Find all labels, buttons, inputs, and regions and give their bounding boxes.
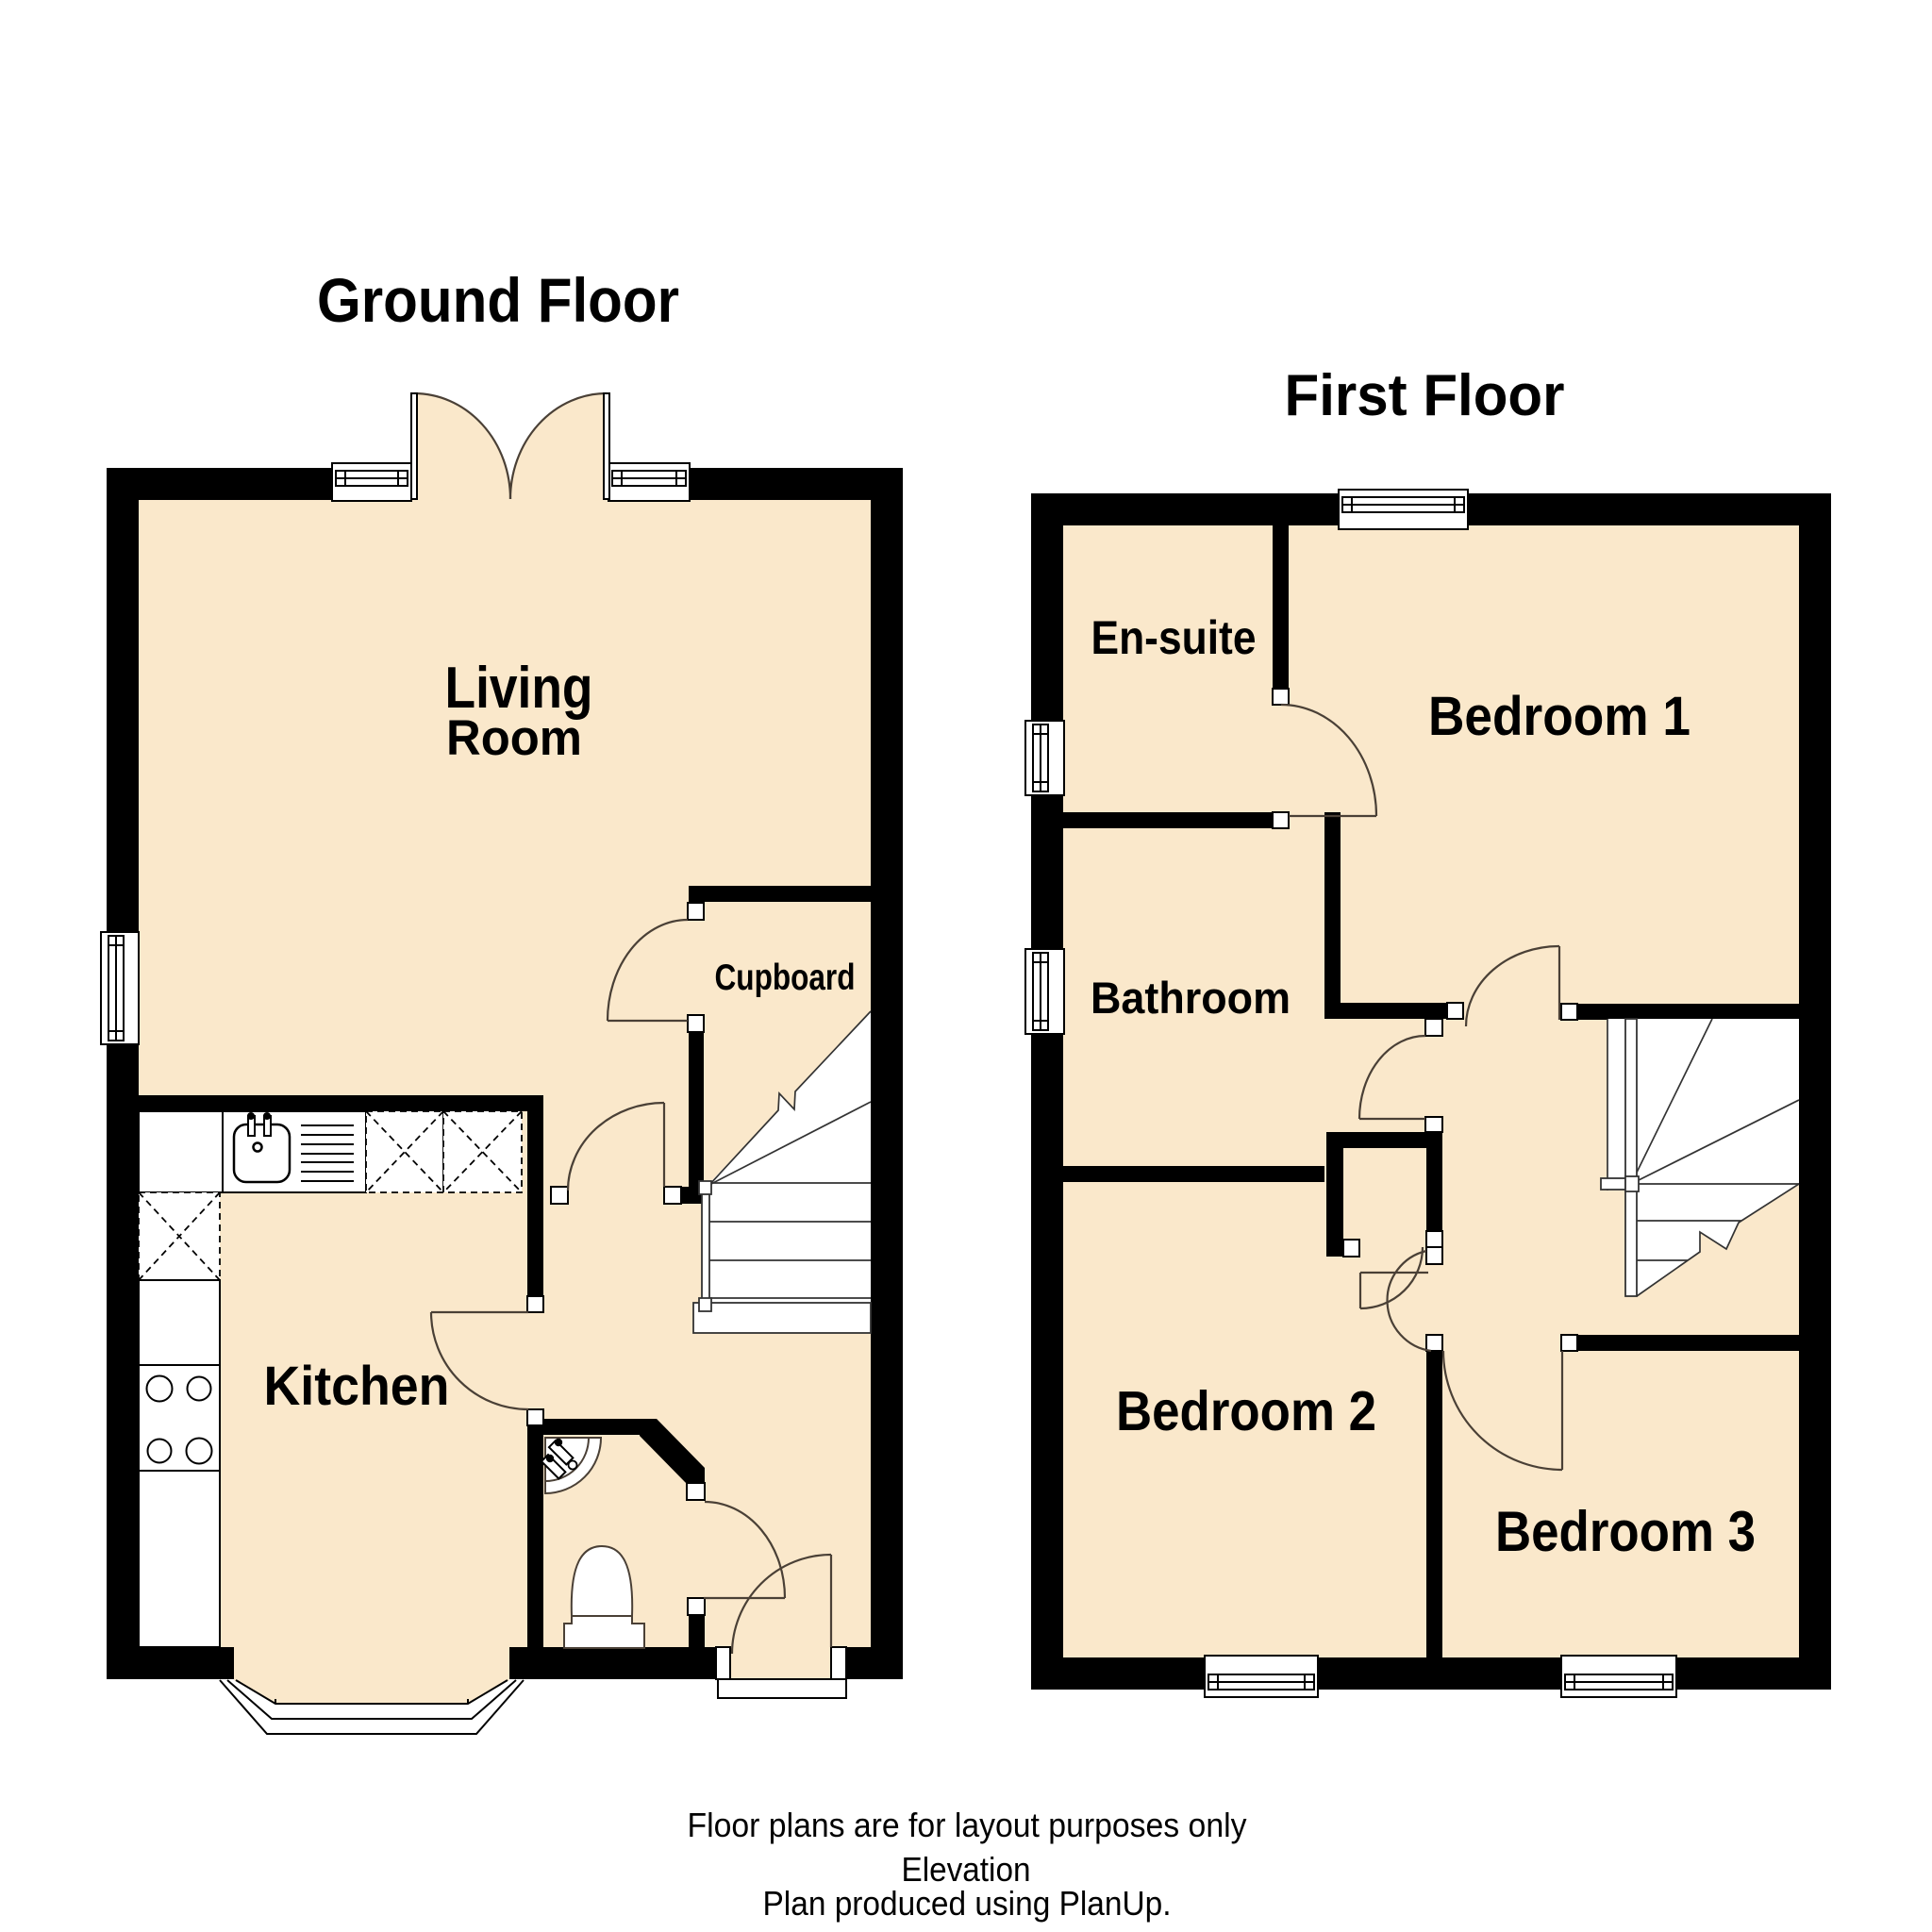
svg-text:Bedroom 1: Bedroom 1 <box>1428 686 1690 747</box>
svg-text:Elevation: Elevation <box>902 1850 1031 1889</box>
svg-text:Bedroom 3: Bedroom 3 <box>1495 1500 1756 1563</box>
svg-text:Bathroom: Bathroom <box>1091 973 1291 1023</box>
svg-text:Room: Room <box>446 710 582 766</box>
svg-text:Cupboard: Cupboard <box>715 958 856 998</box>
svg-text:Plan produced using PlanUp.: Plan produced using PlanUp. <box>763 1884 1172 1923</box>
svg-text:Bedroom 2: Bedroom 2 <box>1116 1380 1376 1442</box>
svg-text:Kitchen: Kitchen <box>264 1356 450 1417</box>
svg-text:Floor plans are for layout pur: Floor plans are for layout purposes only <box>688 1806 1247 1844</box>
svg-text:En-suite: En-suite <box>1091 611 1257 664</box>
svg-text:Ground Floor: Ground Floor <box>317 265 679 335</box>
svg-text:First Floor: First Floor <box>1285 363 1565 428</box>
